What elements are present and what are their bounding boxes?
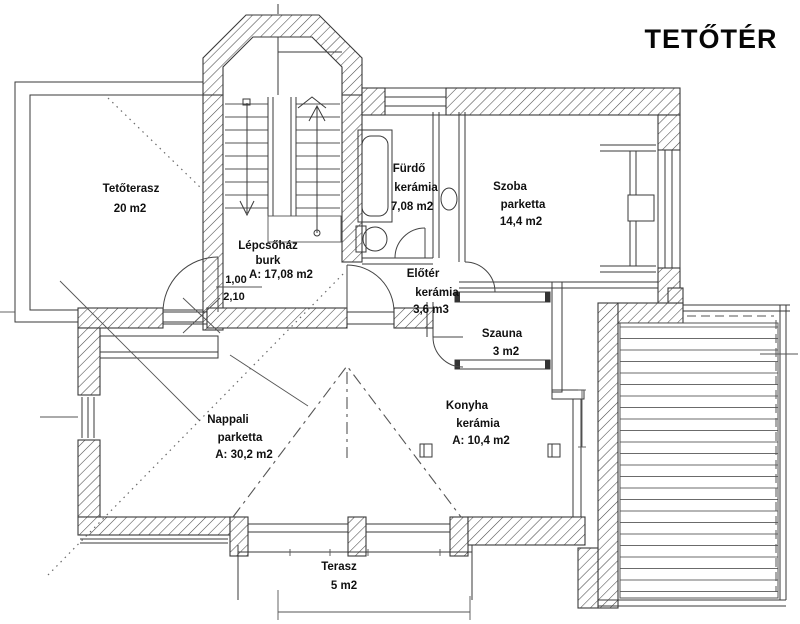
sauna-south-wall	[455, 360, 550, 369]
label-nappali-area: A: 30,2 m2	[215, 449, 273, 461]
label-furdo-area: 7,08 m2	[391, 201, 433, 213]
label-nappali-name: Nappali	[207, 414, 249, 426]
label-eloter-area: 3,6 m3	[413, 304, 449, 316]
label-furdo-name: Fürdő	[393, 163, 426, 175]
bath-window	[385, 88, 446, 115]
sauna-north-wall	[455, 292, 550, 302]
floor-plan-page: TETŐTÉR Tetőterasz 20 m2 Lépcsőház burk …	[0, 0, 800, 624]
middle-wall-a	[78, 308, 163, 328]
north-wall-b	[446, 88, 680, 115]
label-szoba-area: 14,4 m2	[500, 216, 542, 228]
label-tetoterasz-area: 20 m2	[114, 203, 147, 215]
east-wall-a	[658, 115, 680, 150]
stair-bay-wall	[203, 15, 362, 95]
stairwell-left-wall	[203, 95, 223, 330]
label-konyha-area: A: 10,4 m2	[452, 435, 510, 447]
deck-wall-notch	[668, 288, 683, 303]
west-wall-b	[78, 440, 100, 517]
label-furdo-material: kerámia	[394, 182, 438, 194]
label-eloter-name: Előtér	[407, 268, 440, 280]
stair-direction-down-arrow	[240, 99, 254, 215]
stair-direction-up-arrow	[309, 106, 325, 236]
sauna-east-wall	[552, 282, 562, 392]
page-title: TETŐTÉR	[645, 23, 778, 54]
terrace-pillar-2	[348, 517, 366, 556]
deck-north-wall	[618, 303, 683, 323]
stairwell-right-wall	[342, 95, 362, 262]
label-szauna-name: Szauna	[482, 328, 523, 340]
label-terasz-area: 5 m2	[331, 580, 357, 592]
label-nappali-material: parketta	[218, 432, 263, 444]
terrace-pillar-3	[450, 517, 468, 556]
south-wall-b	[468, 517, 585, 545]
deck-west-wall	[598, 303, 618, 608]
label-tetoterasz-name: Tetőterasz	[103, 183, 160, 195]
bay-window	[600, 145, 656, 272]
label-terasz-name: Terasz	[321, 561, 357, 573]
south-wall-a	[78, 517, 230, 535]
label-szoba-name: Szoba	[493, 181, 527, 193]
deck-corner-wall	[578, 548, 598, 608]
label-konyha-name: Konyha	[446, 400, 489, 412]
door-height-value: 2,10	[223, 291, 244, 303]
terrace-pillar-1	[230, 517, 248, 556]
floor-plan-drawing: TETŐTÉR Tetőterasz 20 m2 Lépcsőház burk …	[0, 0, 800, 624]
opening-post-left	[420, 444, 432, 457]
roof-terrace-railing	[0, 82, 203, 322]
middle-wall-b	[207, 308, 347, 328]
hall-door-arc	[347, 265, 394, 312]
terrace-dimension-lines	[278, 590, 470, 620]
toilet-icon	[363, 227, 387, 251]
stair-landing	[268, 216, 341, 242]
label-lepcsohaz-material: burk	[256, 255, 282, 267]
label-szoba-material: parketta	[501, 199, 546, 211]
label-eloter-material: kerámia	[415, 287, 459, 299]
label-lepcsohaz-area: A: 17,08 m2	[249, 269, 313, 281]
west-wall-a	[78, 328, 100, 395]
interior-walls	[100, 112, 658, 517]
bathtub-icon	[358, 130, 392, 222]
wc-icon	[441, 188, 457, 210]
label-konyha-material: kerámia	[456, 418, 500, 430]
door-width-value: 1,00	[225, 274, 246, 286]
attic-hatch-mark	[298, 97, 326, 108]
label-szauna-area: 3 m2	[493, 346, 519, 358]
label-lepcsohaz-name: Lépcsőház	[238, 240, 298, 252]
slope-dotted-line	[108, 98, 203, 190]
opening-post-right	[548, 444, 560, 457]
north-wall-a	[362, 88, 385, 115]
west-window	[40, 397, 94, 438]
bath-door-arc	[395, 228, 425, 258]
east-window	[658, 150, 680, 268]
